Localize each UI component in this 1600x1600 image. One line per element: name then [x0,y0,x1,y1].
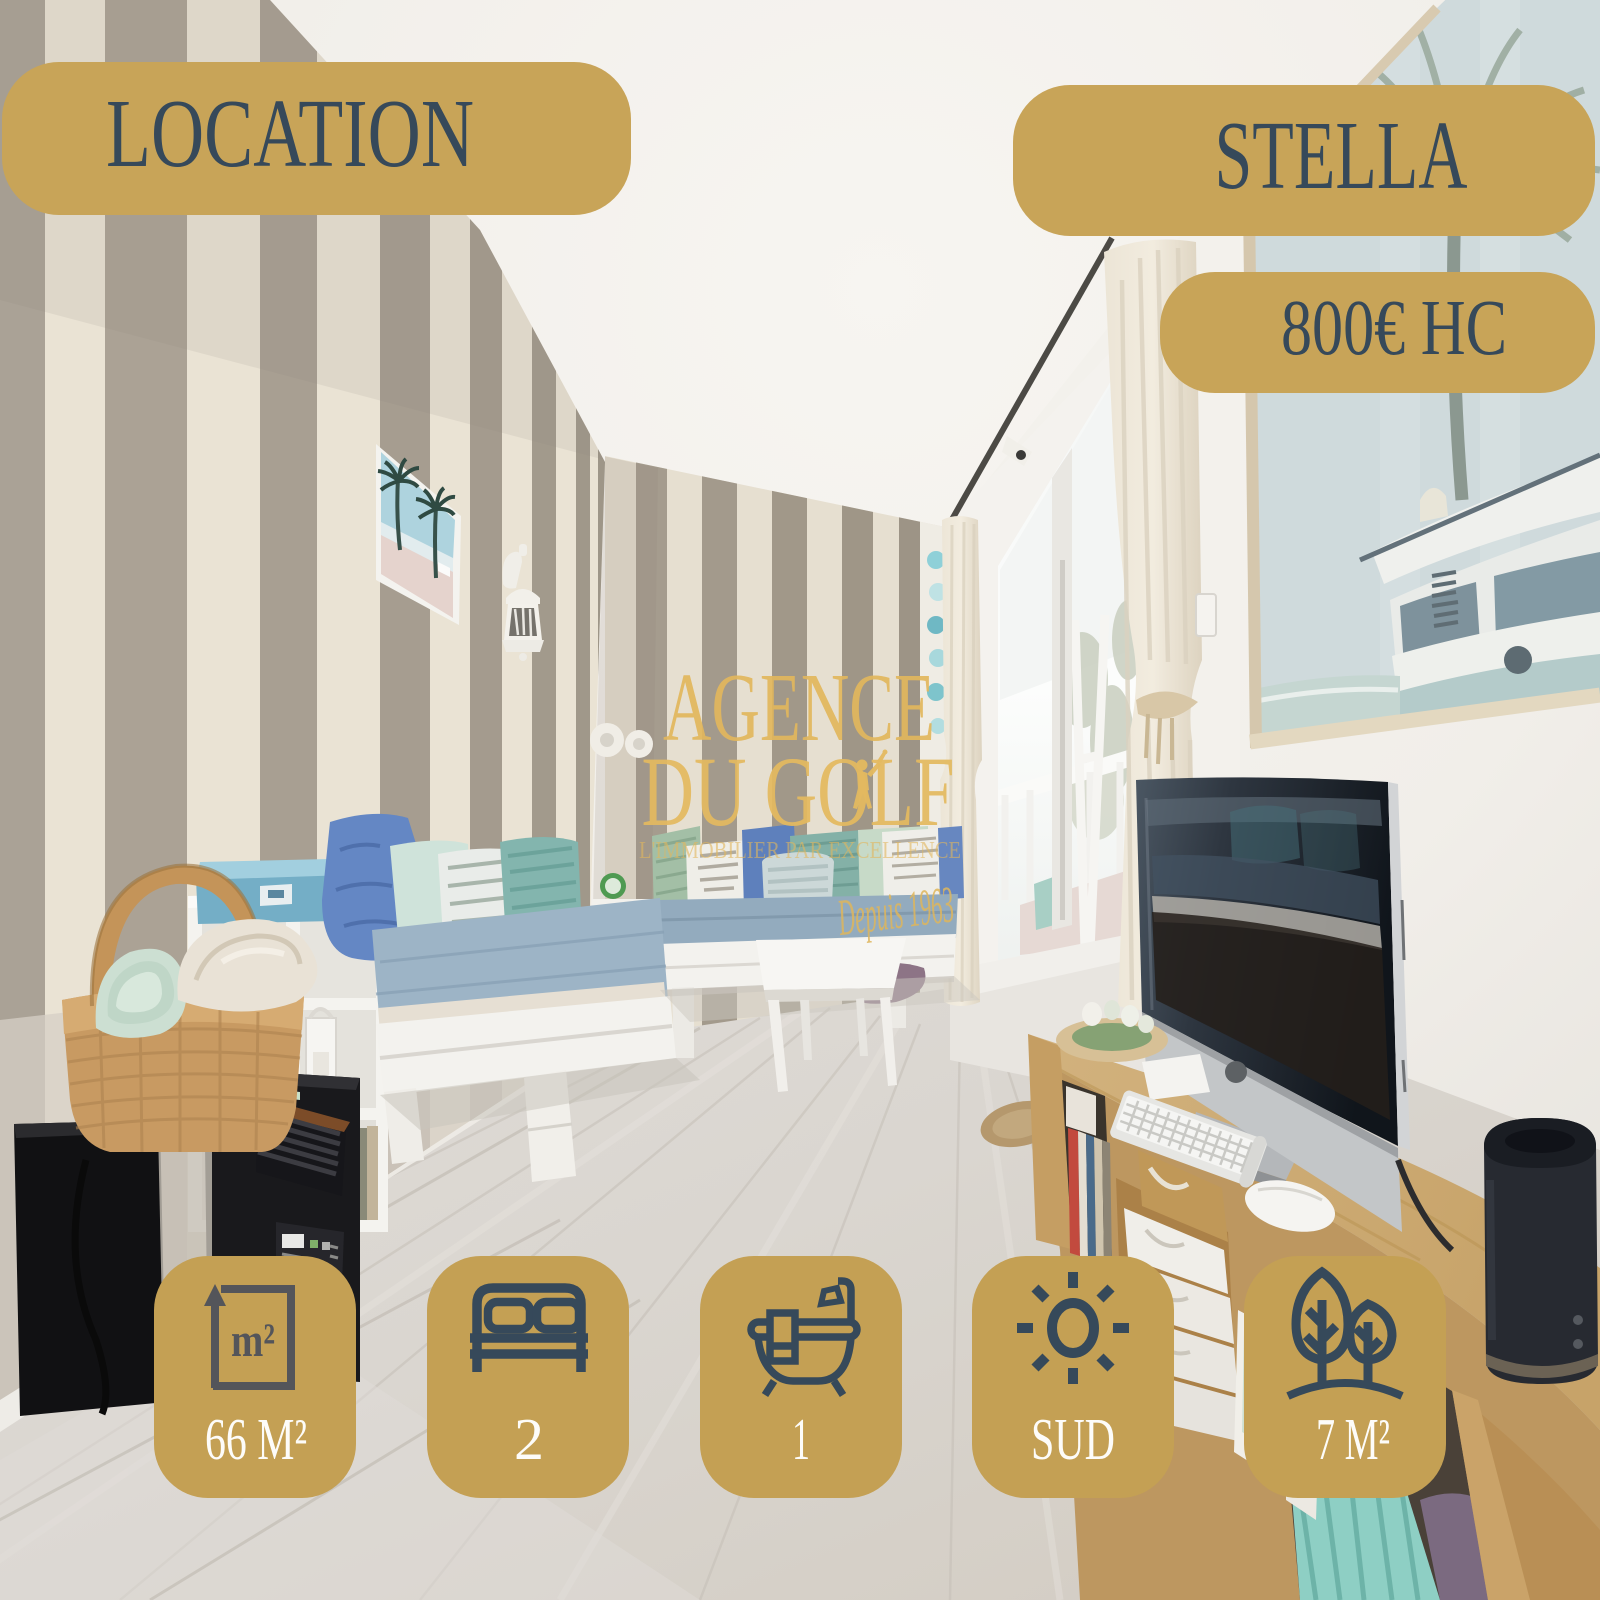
svg-text:2: 2 [514,1406,544,1472]
svg-text:L'IMMOBILIER PAR EXCELLENCE: L'IMMOBILIER PAR EXCELLENCE [639,838,961,864]
svg-text:800€ HC: 800€ HC [1281,285,1507,372]
svg-text:STELLA: STELLA [1215,102,1468,209]
svg-text:SUD: SUD [1031,1406,1115,1472]
svg-text:m²: m² [231,1314,275,1367]
svg-text:66 M²: 66 M² [205,1406,307,1472]
svg-text:7 M²: 7 M² [1316,1406,1390,1472]
svg-text:DU GOLF: DU GOLF [642,736,955,847]
svg-text:1: 1 [792,1406,810,1472]
svg-text:LOCATION: LOCATION [106,80,474,187]
